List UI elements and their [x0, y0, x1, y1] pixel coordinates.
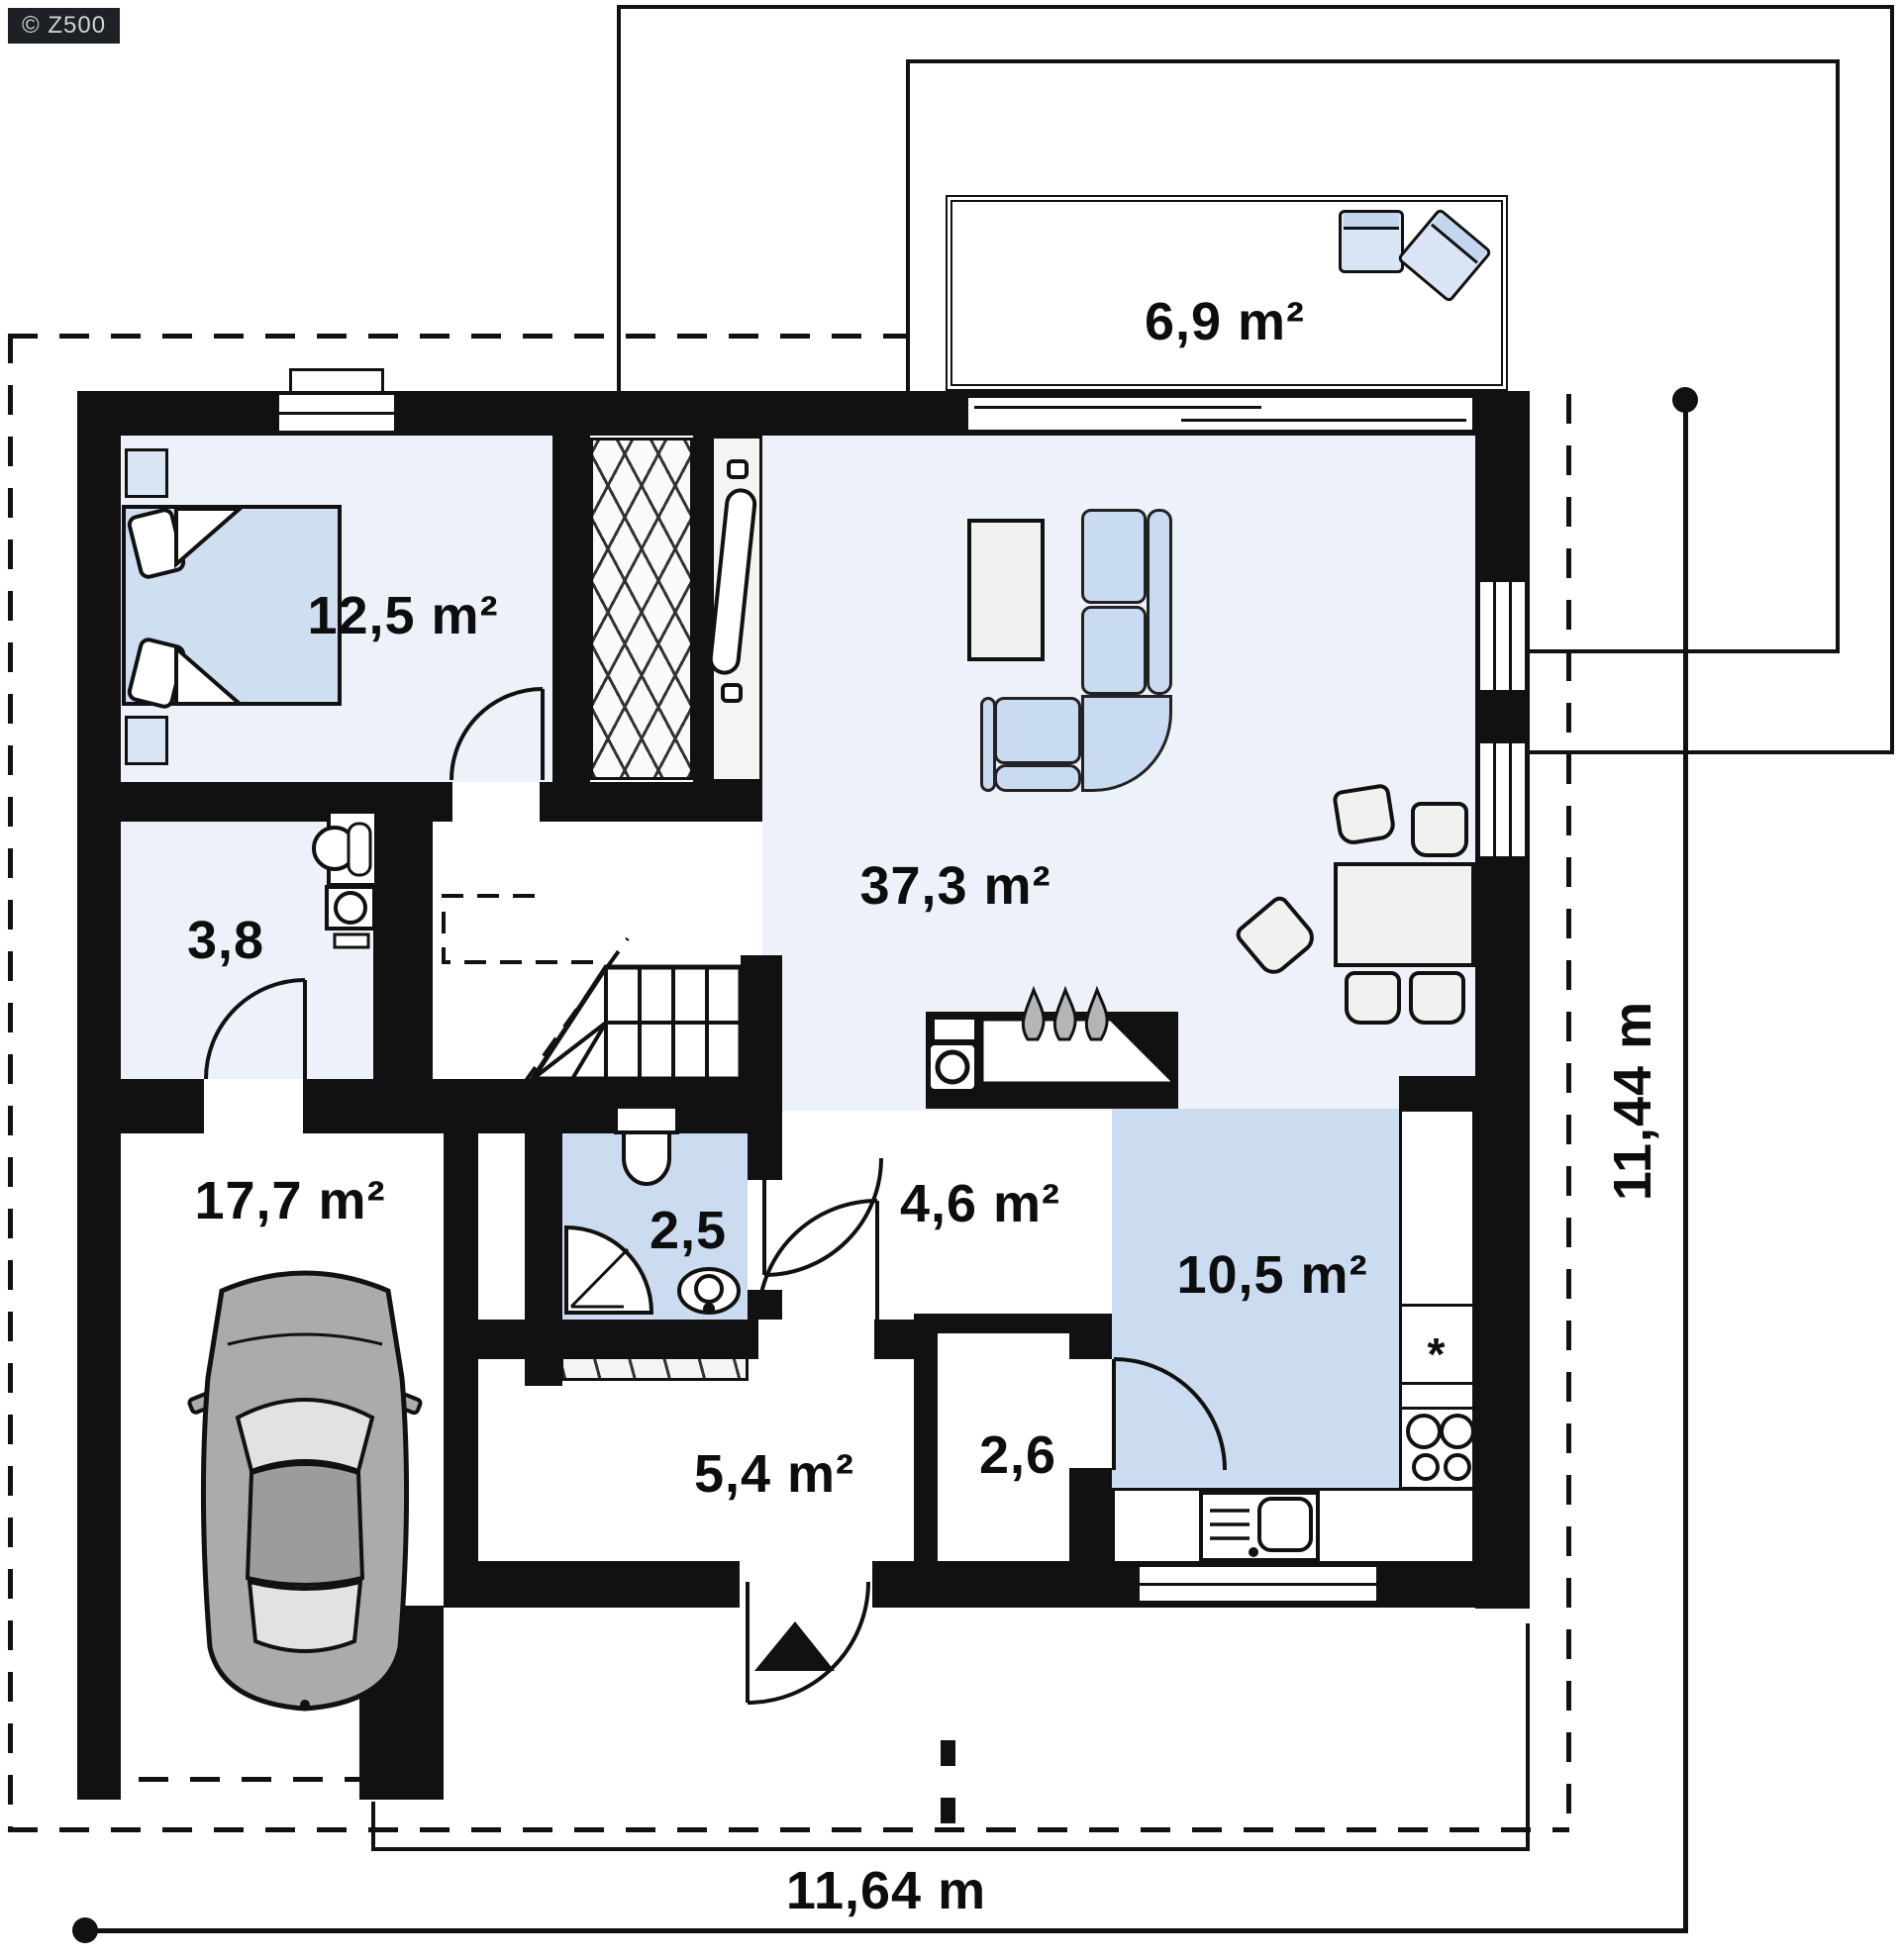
- floor-plan: 6,9 m² 12,5 m² 37,3 m² 3,8 17,7 m² 2,5 4…: [0, 0, 1901, 1960]
- flames-icon: [1023, 990, 1107, 1039]
- door-arc: [1114, 1359, 1225, 1470]
- hob-burners: [1408, 1416, 1473, 1479]
- shower-icon: [566, 1227, 651, 1313]
- toilet-icon: [616, 1107, 677, 1184]
- fireplace-icon: [926, 990, 1178, 1109]
- stairs-icon: [444, 896, 741, 1085]
- car-icon: [188, 1273, 421, 1710]
- boiler-icon: [314, 812, 376, 947]
- entrance-marker-icon: [754, 1621, 835, 1671]
- washbasin-icon: [679, 1269, 739, 1313]
- bed-pillows: [128, 509, 240, 709]
- kitchen-sink-icon: [1201, 1493, 1318, 1560]
- plan-overlay: [0, 0, 1901, 1960]
- door-arc: [451, 689, 543, 780]
- door-arc: [206, 980, 305, 1079]
- door-arc: [764, 1158, 881, 1275]
- sideboard-items: [709, 461, 755, 701]
